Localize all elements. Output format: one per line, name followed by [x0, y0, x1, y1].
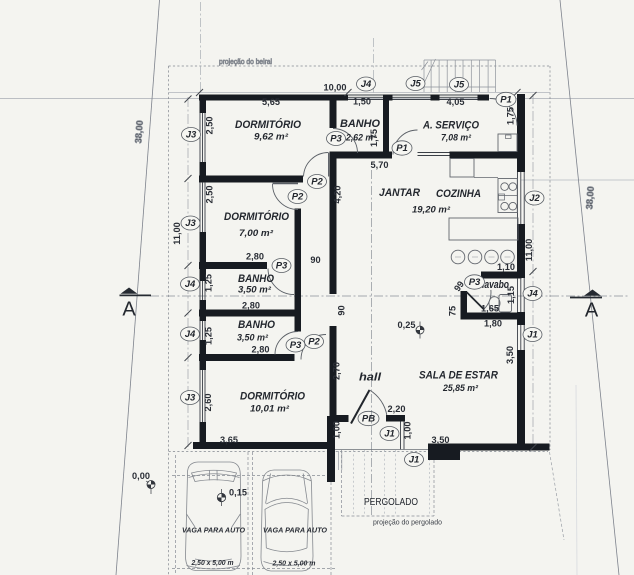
svg-text:BANHO: BANHO — [238, 319, 275, 331]
svg-text:9,62 m²: 9,62 m² — [254, 132, 289, 142]
svg-text:2,80: 2,80 — [246, 252, 264, 262]
svg-text:75: 75 — [448, 306, 458, 316]
svg-text:J5: J5 — [454, 80, 465, 91]
svg-text:J1: J1 — [409, 455, 420, 466]
svg-text:P3: P3 — [330, 134, 342, 145]
svg-text:0,15: 0,15 — [229, 488, 247, 498]
svg-text:P1: P1 — [396, 143, 408, 154]
svg-text:J3: J3 — [186, 130, 197, 141]
svg-text:lavabo: lavabo — [482, 279, 509, 291]
svg-text:J3: J3 — [185, 218, 196, 229]
svg-text:J5: J5 — [410, 79, 421, 90]
svg-text:90: 90 — [310, 255, 320, 265]
svg-text:1,65: 1,65 — [481, 304, 499, 314]
svg-text:hall: hall — [359, 372, 382, 384]
svg-text:J4: J4 — [185, 279, 196, 290]
svg-text:3,65: 3,65 — [220, 435, 238, 445]
svg-text:1,80: 1,80 — [484, 319, 502, 329]
svg-text:projeção do beiral: projeção do beiral — [219, 59, 272, 66]
svg-text:5,70: 5,70 — [371, 160, 389, 170]
svg-text:A: A — [585, 300, 599, 322]
svg-text:10,00: 10,00 — [324, 83, 347, 93]
svg-text:11,00: 11,00 — [524, 239, 534, 261]
svg-text:4,20: 4,20 — [333, 186, 343, 204]
svg-text:3,50 m²: 3,50 m² — [237, 333, 269, 343]
svg-text:J2: J2 — [529, 193, 540, 204]
svg-text:1,25: 1,25 — [204, 327, 214, 345]
svg-text:P1: P1 — [500, 95, 512, 106]
svg-text:3,50 m²: 3,50 m² — [238, 285, 272, 295]
svg-text:P3: P3 — [469, 277, 481, 288]
svg-text:3,50: 3,50 — [505, 346, 515, 364]
svg-text:2,80: 2,80 — [242, 301, 260, 311]
svg-text:BANHO: BANHO — [238, 273, 274, 285]
svg-text:10,01 m²: 10,01 m² — [250, 404, 290, 414]
svg-text:2,50: 2,50 — [205, 117, 215, 135]
svg-text:SALA DE ESTAR: SALA DE ESTAR — [419, 370, 498, 382]
svg-text:DORMITÓRIO: DORMITÓRIO — [240, 390, 305, 403]
svg-text:1,50: 1,50 — [353, 97, 371, 107]
svg-text:P3: P3 — [290, 340, 302, 351]
svg-text:P3: P3 — [276, 261, 288, 272]
svg-text:38,00: 38,00 — [133, 120, 145, 144]
svg-text:DORMITÓRIO: DORMITÓRIO — [224, 210, 289, 223]
svg-text:2,50 x 5,00 m: 2,50 x 5,00 m — [272, 559, 316, 568]
svg-text:JANTAR: JANTAR — [379, 187, 420, 199]
svg-text:1,25: 1,25 — [204, 274, 214, 292]
svg-text:DORMITÓRIO: DORMITÓRIO — [235, 118, 301, 131]
svg-text:VAGA PARA AUTO: VAGA PARA AUTO — [182, 526, 245, 535]
svg-text:projeção do pergolado: projeção do pergolado — [373, 520, 442, 527]
svg-text:A. SERVIÇO: A. SERVIÇO — [422, 120, 479, 132]
svg-text:90: 90 — [337, 305, 347, 315]
svg-text:1,00: 1,00 — [403, 422, 413, 440]
svg-text:J1: J1 — [384, 429, 395, 440]
svg-text:J1: J1 — [527, 330, 538, 341]
svg-text:25,85 m²: 25,85 m² — [442, 383, 479, 393]
svg-text:PB: PB — [362, 414, 375, 425]
svg-text:5,65: 5,65 — [262, 97, 280, 107]
svg-text:7,00 m²: 7,00 m² — [239, 228, 274, 238]
svg-text:A: A — [122, 299, 136, 321]
svg-text:2,50 x 5,00 m: 2,50 x 5,00 m — [191, 558, 234, 567]
svg-text:2,70: 2,70 — [332, 362, 342, 380]
svg-text:P2: P2 — [292, 192, 304, 203]
svg-text:2,50: 2,50 — [205, 186, 215, 204]
svg-text:1,10: 1,10 — [497, 262, 515, 272]
svg-text:4,05: 4,05 — [447, 97, 465, 107]
svg-text:P2: P2 — [308, 337, 320, 348]
svg-text:3,50: 3,50 — [432, 435, 450, 445]
svg-text:11,00: 11,00 — [172, 222, 182, 244]
svg-text:P2: P2 — [311, 177, 323, 188]
svg-text:19,20 m²: 19,20 m² — [412, 205, 451, 215]
svg-text:PERGOLADO: PERGOLADO — [364, 496, 418, 508]
svg-text:J3: J3 — [185, 393, 196, 404]
svg-text:1,00: 1,00 — [332, 421, 342, 439]
svg-text:2,20: 2,20 — [388, 404, 406, 414]
svg-text:38,00: 38,00 — [584, 186, 596, 210]
svg-text:0,00: 0,00 — [132, 471, 150, 481]
svg-text:0,25: 0,25 — [398, 320, 416, 330]
svg-text:J4: J4 — [185, 329, 196, 340]
svg-text:VAGA PARA AUTO: VAGA PARA AUTO — [263, 526, 327, 535]
svg-text:J4: J4 — [361, 79, 372, 90]
svg-text:2,62 m²: 2,62 m² — [345, 133, 377, 143]
svg-text:2,80: 2,80 — [252, 345, 270, 355]
svg-text:1,75: 1,75 — [506, 107, 516, 125]
svg-text:BANHO: BANHO — [340, 118, 380, 130]
svg-text:COZINHA: COZINHA — [436, 188, 481, 200]
svg-text:7,08 m²: 7,08 m² — [441, 133, 472, 143]
svg-text:2,60: 2,60 — [203, 394, 213, 412]
svg-text:J4: J4 — [527, 289, 538, 300]
